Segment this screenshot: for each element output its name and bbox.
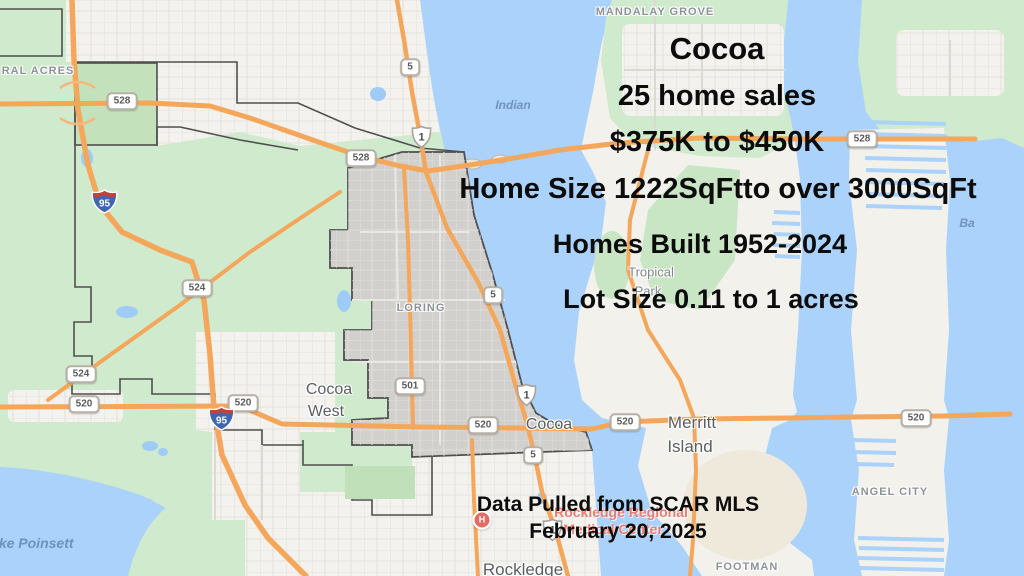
map-canvas[interactable] (0, 0, 1024, 576)
hospital-icon-letter: H (479, 515, 486, 525)
hospital-icon: H (473, 511, 492, 530)
map-annotation-image: MANDALAY GROVERAL ACRESIndianBaTropicalP… (0, 0, 1024, 576)
